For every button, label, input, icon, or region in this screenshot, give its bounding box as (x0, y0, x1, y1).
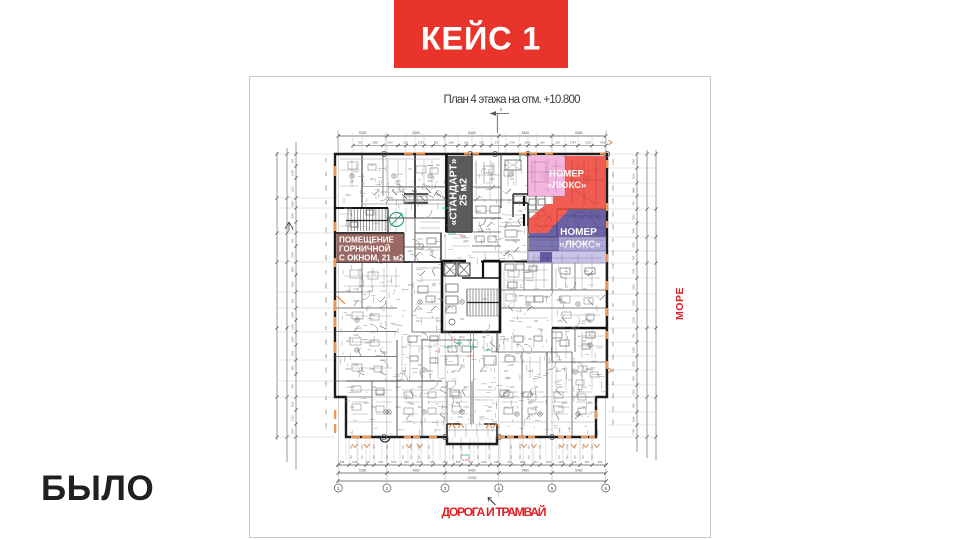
svg-text:1810: 1810 (632, 389, 636, 395)
svg-text:1090: 1090 (291, 336, 295, 342)
svg-text:660: 660 (291, 365, 295, 370)
svg-text:1810: 1810 (353, 300, 359, 303)
svg-text:1500: 1500 (437, 298, 443, 301)
svg-text:1864: 1864 (291, 201, 295, 207)
svg-text:660: 660 (612, 367, 615, 372)
svg-text:500: 500 (325, 269, 328, 274)
svg-text:1864: 1864 (363, 402, 369, 405)
svg-text:1090: 1090 (325, 185, 328, 191)
svg-text:1210: 1210 (537, 328, 543, 331)
svg-text:1810: 1810 (429, 444, 431, 450)
svg-text:2480: 2480 (407, 402, 413, 405)
svg-text:900: 900 (632, 255, 636, 260)
svg-text:1230: 1230 (509, 386, 515, 389)
svg-text:3240: 3240 (632, 416, 636, 422)
svg-text:1810: 1810 (632, 214, 636, 220)
svg-text:980: 980 (430, 460, 435, 464)
svg-text:1090: 1090 (612, 198, 615, 204)
svg-text:1230: 1230 (587, 320, 593, 323)
svg-text:1864: 1864 (561, 368, 567, 371)
svg-text:760: 760 (428, 346, 433, 349)
svg-text:3240: 3240 (509, 270, 515, 273)
svg-text:25 м2: 25 м2 (459, 178, 470, 206)
svg-text:1810: 1810 (509, 288, 515, 291)
svg-text:5330: 5330 (359, 131, 367, 135)
svg-text:1230: 1230 (353, 226, 359, 229)
svg-text:920: 920 (379, 460, 384, 464)
svg-text:506: 506 (572, 460, 577, 464)
svg-text:КЕЙС 1: КЕЙС 1 (421, 19, 541, 57)
svg-text:500: 500 (534, 406, 539, 409)
svg-text:выход: выход (444, 346, 452, 349)
svg-text:1230: 1230 (369, 314, 375, 317)
svg-text:2764: 2764 (632, 429, 636, 435)
svg-text:1500: 1500 (291, 428, 295, 434)
svg-text:ДОРОГА И ТРАМВАЙ: ДОРОГА И ТРАМВАЙ (442, 504, 547, 519)
svg-text:1864: 1864 (632, 187, 636, 193)
svg-text:2764: 2764 (570, 141, 576, 145)
svg-text:3240: 3240 (291, 213, 295, 219)
svg-text:2.34: 2.34 (486, 228, 491, 231)
svg-text:«ЛЮКС»: «ЛЮКС» (547, 180, 587, 191)
svg-text:900: 900 (325, 157, 328, 162)
svg-text:1864: 1864 (417, 406, 423, 409)
svg-text:1500: 1500 (632, 347, 636, 353)
svg-text:1810: 1810 (632, 284, 636, 290)
svg-text:тр.1500: тр.1500 (467, 338, 478, 342)
svg-text:1500: 1500 (557, 406, 563, 409)
svg-text:1810: 1810 (463, 386, 469, 389)
svg-text:План 4 этажа на отм. +10.800: План 4 этажа на отм. +10.800 (444, 94, 581, 106)
svg-text:508: 508 (340, 460, 345, 464)
svg-text:1230: 1230 (291, 324, 295, 330)
svg-text:1500: 1500 (612, 211, 615, 217)
svg-text:2480: 2480 (353, 364, 359, 367)
svg-text:920: 920 (534, 320, 539, 323)
svg-text:1864: 1864 (325, 255, 328, 261)
svg-text:1500: 1500 (459, 336, 465, 339)
svg-text:1210: 1210 (325, 409, 328, 415)
svg-text:500: 500 (488, 386, 493, 389)
svg-text:920: 920 (612, 341, 615, 346)
svg-text:1500: 1500 (463, 240, 469, 243)
svg-text:1500: 1500 (374, 444, 376, 450)
svg-text:900: 900 (612, 380, 615, 385)
svg-text:900: 900 (402, 370, 407, 373)
svg-text:4360: 4360 (412, 131, 420, 135)
svg-text:1810: 1810 (517, 230, 523, 233)
svg-text:760: 760 (518, 210, 523, 213)
svg-text:900: 900 (370, 178, 375, 181)
svg-text:500: 500 (291, 298, 295, 303)
svg-text:1500: 1500 (345, 314, 351, 317)
svg-text:500: 500 (469, 460, 474, 464)
svg-text:2100: 2100 (369, 340, 375, 343)
svg-text:660: 660 (388, 141, 393, 145)
svg-text:1500: 1500 (291, 170, 295, 176)
svg-text:506: 506 (366, 460, 371, 464)
svg-text:2764: 2764 (481, 298, 487, 301)
svg-text:760: 760 (510, 406, 515, 409)
svg-text:3240: 3240 (555, 340, 561, 343)
svg-text:1810: 1810 (612, 354, 615, 360)
svg-text:1090: 1090 (612, 263, 615, 269)
svg-text:760: 760 (482, 168, 487, 171)
svg-text:1210: 1210 (325, 213, 328, 219)
svg-text:1210: 1210 (435, 320, 441, 323)
svg-text:БЫЛО: БЫЛО (41, 469, 154, 508)
svg-text:1230: 1230 (612, 328, 615, 334)
svg-text:1864: 1864 (612, 393, 615, 399)
svg-text:2764: 2764 (632, 268, 636, 274)
svg-text:1864: 1864 (612, 172, 615, 178)
svg-text:900: 900 (325, 171, 328, 176)
svg-text:920: 920 (504, 370, 509, 373)
svg-text:2764: 2764 (509, 320, 515, 323)
svg-text:1500: 1500 (612, 250, 615, 256)
svg-text:660: 660 (430, 250, 435, 253)
svg-text:1230: 1230 (533, 288, 539, 291)
svg-text:920: 920 (432, 284, 437, 287)
svg-text:1500: 1500 (457, 416, 463, 419)
svg-text:960: 960 (585, 460, 590, 464)
svg-text:1092: 1092 (481, 460, 487, 464)
svg-text:С ОКНОМ, 21 м2: С ОКНОМ, 21 м2 (339, 254, 404, 263)
svg-text:2480: 2480 (494, 460, 500, 464)
svg-text:1230: 1230 (527, 370, 533, 373)
svg-text:1090: 1090 (407, 250, 413, 253)
svg-text:900: 900 (325, 241, 328, 246)
svg-text:1090: 1090 (369, 164, 375, 167)
svg-text:900: 900 (436, 164, 441, 167)
svg-text:2100: 2100 (581, 340, 587, 343)
svg-text:3240: 3240 (325, 367, 328, 373)
svg-text:2764: 2764 (345, 290, 351, 293)
svg-text:660: 660 (408, 284, 413, 287)
svg-text:920: 920 (325, 395, 328, 400)
svg-text:5460: 5460 (575, 468, 582, 472)
svg-text:2740: 2740 (509, 141, 515, 145)
svg-text:1864: 1864 (427, 370, 433, 373)
svg-text:1210: 1210 (612, 159, 615, 165)
svg-text:2764: 2764 (325, 423, 328, 429)
svg-text:1500: 1500 (427, 180, 433, 183)
svg-text:2740: 2740 (417, 460, 423, 464)
svg-text:1210: 1210 (401, 346, 407, 349)
svg-text:2100: 2100 (489, 178, 495, 181)
svg-text:1862: 1862 (442, 460, 448, 464)
svg-text:1230: 1230 (503, 338, 509, 341)
svg-text:1810: 1810 (395, 386, 401, 389)
svg-text:1090: 1090 (325, 227, 328, 233)
svg-text:2100: 2100 (481, 370, 487, 373)
svg-text:2764: 2764 (632, 159, 636, 165)
svg-text:2100: 2100 (557, 386, 563, 389)
svg-text:1090: 1090 (325, 297, 328, 303)
svg-text:500: 500 (558, 288, 563, 291)
svg-text:1500: 1500 (349, 386, 355, 389)
svg-text:660: 660 (612, 315, 615, 320)
svg-text:НОМЕР: НОМЕР (560, 227, 597, 238)
svg-text:2100: 2100 (291, 252, 295, 258)
svg-text:1864: 1864 (441, 406, 447, 409)
svg-text:5330: 5330 (359, 468, 366, 472)
svg-text:500: 500 (372, 406, 377, 409)
svg-text:м.2: м.2 (435, 349, 440, 353)
svg-text:2100: 2100 (505, 250, 511, 253)
svg-text:660: 660 (464, 141, 469, 145)
svg-text:1230: 1230 (555, 370, 561, 373)
svg-text:660: 660 (632, 403, 636, 408)
svg-text:1230: 1230 (557, 298, 563, 301)
svg-text:5460: 5460 (522, 468, 529, 472)
svg-text:2764: 2764 (362, 444, 364, 450)
svg-text:1210: 1210 (479, 416, 485, 419)
svg-text:1210: 1210 (581, 386, 587, 389)
svg-text:920: 920 (404, 460, 409, 464)
svg-text:900: 900 (325, 325, 328, 330)
svg-text:2480: 2480 (353, 334, 359, 337)
svg-text:5460: 5460 (468, 468, 475, 472)
svg-text:500: 500 (372, 386, 377, 389)
svg-text:760: 760 (291, 384, 295, 389)
svg-text:900: 900 (291, 238, 295, 243)
svg-text:1500: 1500 (632, 300, 636, 306)
svg-text:2764: 2764 (417, 238, 423, 241)
svg-text:1810: 1810 (417, 308, 423, 311)
svg-text:1000: 1000 (352, 460, 358, 464)
svg-text:1210: 1210 (291, 415, 295, 421)
svg-text:2480: 2480 (612, 185, 615, 191)
svg-text:660: 660 (460, 318, 465, 321)
svg-text:920: 920 (510, 364, 515, 367)
svg-text:1810: 1810 (632, 361, 636, 367)
svg-text:500: 500 (510, 178, 515, 181)
svg-text:3240: 3240 (612, 276, 615, 282)
svg-text:920: 920 (418, 364, 423, 367)
svg-text:НОМЕР: НОМЕР (549, 169, 585, 180)
svg-text:1210: 1210 (291, 186, 295, 192)
svg-text:2480: 2480 (367, 290, 373, 293)
svg-text:1454: 1454 (546, 460, 552, 464)
svg-text:3240: 3240 (581, 370, 587, 373)
svg-text:1500: 1500 (489, 454, 491, 460)
svg-text:760: 760 (350, 180, 355, 183)
svg-text:1864: 1864 (561, 402, 567, 405)
svg-text:1880: 1880 (372, 141, 378, 145)
svg-text:2480: 2480 (345, 368, 351, 371)
svg-text:500: 500 (456, 402, 461, 405)
svg-text:500: 500 (528, 338, 533, 341)
svg-text:2480: 2480 (369, 368, 375, 371)
svg-text:2100: 2100 (632, 242, 636, 248)
svg-text:660: 660 (540, 141, 545, 145)
svg-text:21040: 21040 (468, 476, 477, 480)
svg-text:500: 500 (555, 141, 560, 145)
svg-text:1864: 1864 (581, 406, 587, 409)
svg-text:ГОРНИЧНОЙ: ГОРНИЧНОЙ (339, 245, 391, 254)
svg-text:3240: 3240 (417, 386, 423, 389)
svg-text:1500: 1500 (632, 317, 636, 323)
svg-text:660: 660 (456, 460, 461, 464)
svg-text:1500: 1500 (441, 386, 447, 389)
svg-text:920: 920 (612, 289, 615, 294)
svg-text:500: 500 (534, 386, 539, 389)
svg-text:2480: 2480 (325, 339, 328, 345)
svg-text:1210: 1210 (415, 320, 421, 323)
svg-text:1500: 1500 (291, 350, 295, 356)
svg-text:1210: 1210 (581, 320, 587, 323)
svg-text:1864: 1864 (325, 283, 328, 289)
svg-text:500: 500 (528, 402, 533, 405)
svg-text:500: 500 (612, 302, 615, 307)
svg-text:660: 660 (325, 353, 328, 358)
svg-text:960: 960 (434, 141, 439, 145)
svg-text:760: 760 (408, 168, 413, 171)
svg-text:920: 920 (346, 340, 351, 343)
svg-text:760: 760 (325, 311, 328, 316)
svg-text:1864: 1864 (583, 270, 589, 273)
svg-text:2456: 2456 (558, 460, 564, 464)
svg-text:«ЛЮКС»: «ЛЮКС» (559, 240, 601, 251)
svg-text:1810: 1810 (587, 402, 593, 405)
svg-text:ПОМЕЩЕНИЕ: ПОМЕЩЕНИЕ (339, 236, 395, 245)
svg-text:1230: 1230 (592, 444, 594, 450)
svg-text:760: 760 (632, 333, 636, 338)
svg-text:1210: 1210 (291, 401, 295, 407)
svg-text:2760: 2760 (418, 141, 424, 145)
svg-text:1210: 1210 (612, 419, 615, 425)
svg-text:4360: 4360 (412, 468, 419, 472)
svg-text:2764: 2764 (463, 406, 469, 409)
svg-text:760: 760 (612, 237, 615, 242)
svg-text:2100: 2100 (632, 173, 636, 179)
svg-text:2764: 2764 (459, 364, 465, 367)
svg-text:1860: 1860 (448, 141, 454, 145)
svg-text:5460: 5460 (575, 131, 583, 135)
svg-text:1230: 1230 (451, 370, 457, 373)
svg-text:1080: 1080 (585, 141, 591, 145)
svg-text:500: 500 (482, 336, 487, 339)
svg-text:503: 503 (598, 460, 603, 464)
svg-text:900: 900 (488, 406, 493, 409)
svg-text:920: 920 (632, 376, 636, 381)
svg-text:1500: 1500 (612, 406, 615, 412)
svg-text:760: 760 (632, 201, 636, 206)
svg-text:1864: 1864 (291, 312, 295, 318)
svg-text:500: 500 (291, 158, 295, 163)
svg-text:920: 920 (474, 346, 479, 349)
svg-text:1810: 1810 (345, 194, 351, 197)
svg-text:2764: 2764 (581, 288, 587, 291)
svg-text:1500: 1500 (291, 281, 295, 287)
svg-text:1864: 1864 (291, 266, 295, 272)
svg-text:1230: 1230 (612, 224, 615, 230)
svg-text:3240: 3240 (632, 228, 636, 234)
svg-text:3240: 3240 (395, 406, 401, 409)
svg-text:2764: 2764 (325, 381, 328, 387)
svg-text:1864: 1864 (524, 141, 530, 145)
svg-text:1864: 1864 (457, 266, 463, 269)
svg-text:0.000: 0.000 (463, 458, 470, 462)
svg-text:660: 660 (325, 199, 328, 204)
svg-text:2480: 2480 (557, 320, 563, 323)
svg-text:2480: 2480 (395, 180, 401, 183)
svg-text:760: 760 (350, 406, 355, 409)
svg-text:МОРЕ: МОРЕ (674, 287, 686, 320)
